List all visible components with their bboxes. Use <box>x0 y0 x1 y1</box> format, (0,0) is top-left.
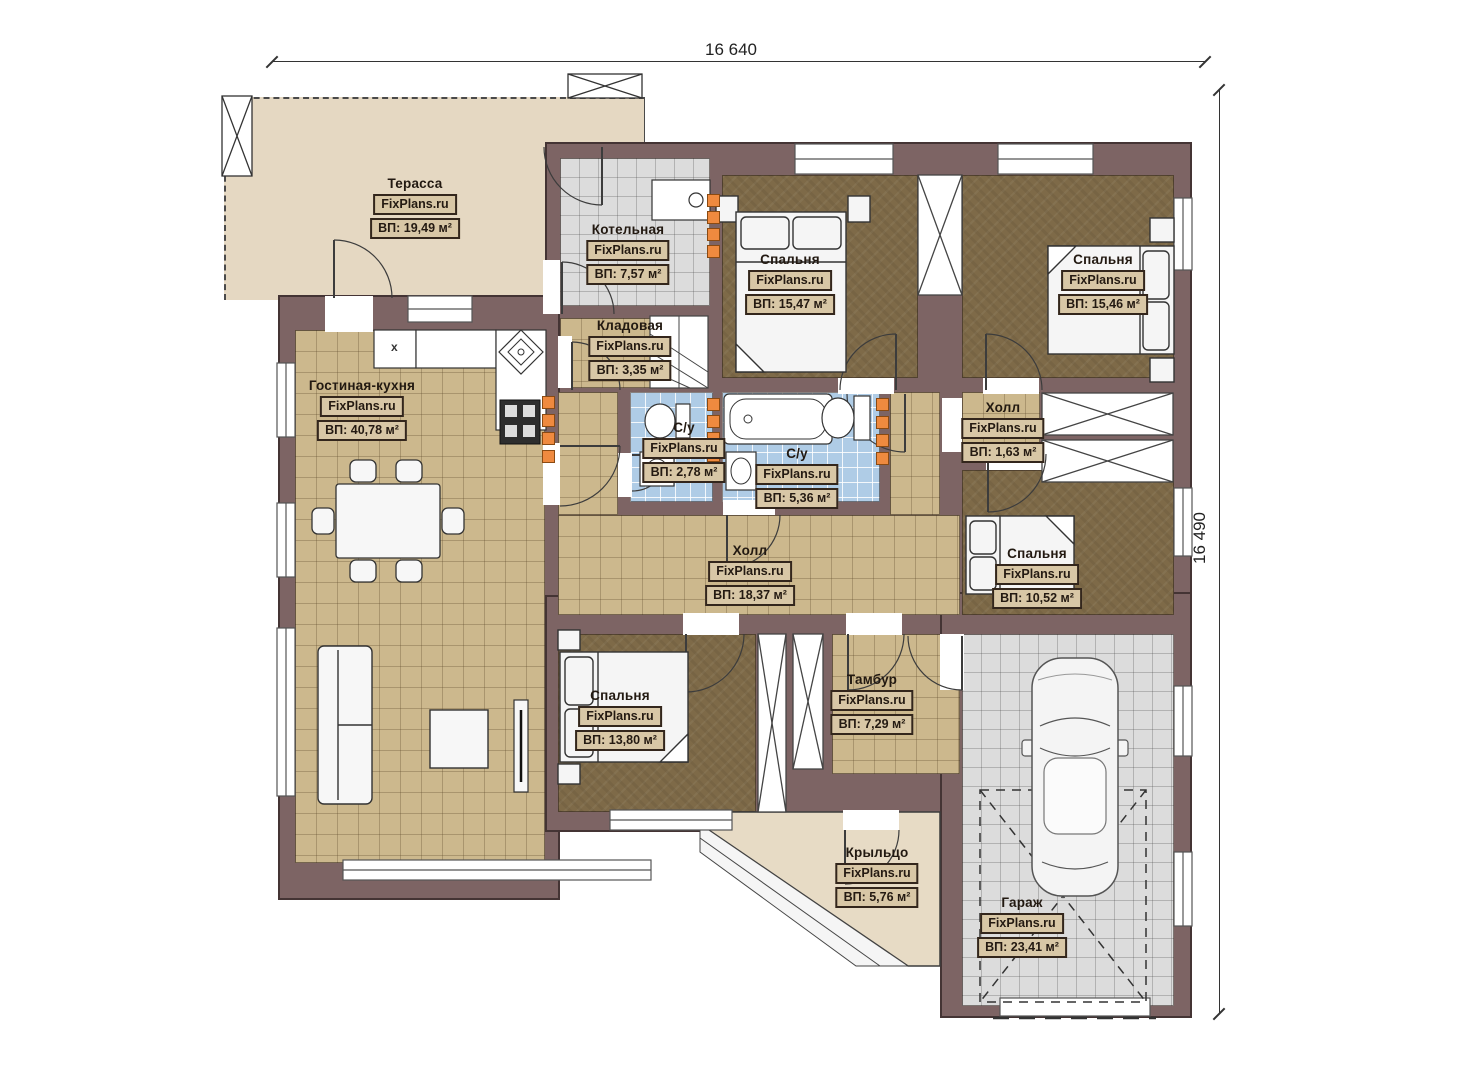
boiler-unit <box>652 180 710 220</box>
vent-icon <box>542 432 555 445</box>
plan-drawing-overlay <box>0 0 1473 1080</box>
vent-icon <box>542 396 555 409</box>
vent-icon <box>876 416 889 429</box>
toilet-big <box>822 396 870 440</box>
dimension-right-value: 16 490 <box>1190 512 1210 564</box>
room-label-boiler: Котельная FixPlans.ru ВП: 7,57 м² <box>586 222 669 285</box>
vent-icon <box>707 398 720 411</box>
vent-icon <box>876 398 889 411</box>
vent-icon <box>707 245 720 258</box>
room-label-vestibule: Тамбур FixPlans.ru ВП: 7,29 м² <box>830 672 913 735</box>
kitchen-unit-label: x <box>391 340 398 354</box>
room-label-wc-small: С/у FixPlans.ru ВП: 2,78 м² <box>642 420 725 483</box>
vent-icon <box>542 450 555 463</box>
room-label-terrace: Терасса FixPlans.ru ВП: 19,49 м² <box>370 176 460 239</box>
tv-stand <box>514 700 528 792</box>
dimension-line-top <box>272 61 1205 62</box>
car-icon <box>1022 658 1128 896</box>
room-label-living-kitchen: Гостиная-кухня FixPlans.ru ВП: 40,78 м² <box>309 378 415 441</box>
room-label-garage: Гараж FixPlans.ru ВП: 23,41 м² <box>977 895 1067 958</box>
room-label-hall-small: Холл FixPlans.ru ВП: 1,63 м² <box>961 400 1044 463</box>
floor-plan: x Терасса FixPlans.ru ВП: 19,49 м² Котел… <box>0 0 1473 1080</box>
room-label-bedroom-1547: Спальня FixPlans.ru ВП: 15,47 м² <box>745 252 835 315</box>
vent-icon <box>542 414 555 427</box>
vent-icon <box>707 194 720 207</box>
room-label-hall-main: Холл FixPlans.ru ВП: 18,37 м² <box>705 543 795 606</box>
vent-icon <box>707 228 720 241</box>
sofa <box>318 646 372 804</box>
bathtub <box>724 394 832 444</box>
washbasin-big <box>726 452 756 490</box>
garage-door <box>993 998 1156 1018</box>
room-label-wc-big: С/у FixPlans.ru ВП: 5,36 м² <box>755 446 838 509</box>
vent-icon <box>876 434 889 447</box>
room-label-bedroom-1052: Спальня FixPlans.ru ВП: 10,52 м² <box>992 546 1082 609</box>
terrace-pillars <box>222 74 642 176</box>
dimension-top-value: 16 640 <box>705 40 757 60</box>
room-label-porch: Крыльцо FixPlans.ru ВП: 5,76 м² <box>835 845 918 908</box>
dimension-line-right <box>1219 90 1220 1014</box>
room-label-bedroom-1380: Спальня FixPlans.ru ВП: 13,80 м² <box>575 688 665 751</box>
room-label-bedroom-1546: Спальня FixPlans.ru ВП: 15,46 м² <box>1058 252 1148 315</box>
vent-icon <box>876 452 889 465</box>
coffee-table <box>430 710 488 768</box>
room-label-pantry: Кладовая FixPlans.ru ВП: 3,35 м² <box>588 318 671 381</box>
vent-icon <box>707 211 720 224</box>
dining-set <box>312 460 464 582</box>
